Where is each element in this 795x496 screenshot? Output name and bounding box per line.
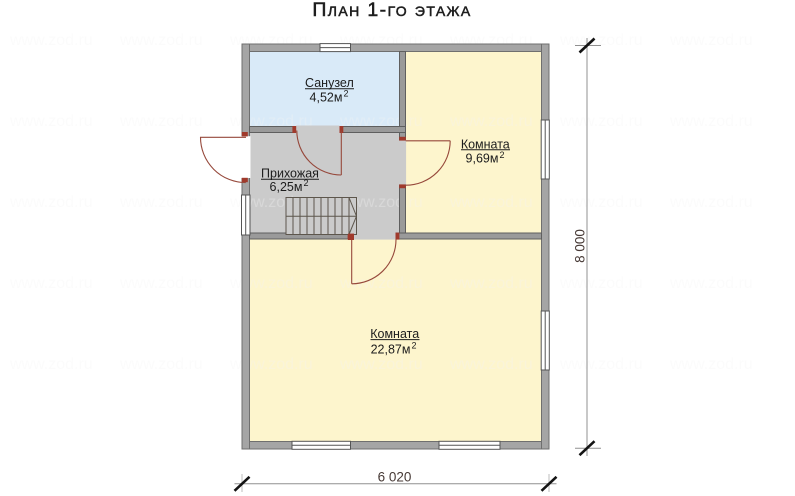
svg-text:2: 2 bbox=[344, 89, 349, 99]
svg-text:www.zod.ru: www.zod.ru bbox=[449, 113, 533, 130]
svg-text:www.zod.ru: www.zod.ru bbox=[339, 356, 423, 373]
svg-text:2: 2 bbox=[500, 150, 505, 160]
svg-text:www.zod.ru: www.zod.ru bbox=[669, 113, 753, 130]
svg-text:www.zod.ru: www.zod.ru bbox=[449, 275, 533, 292]
svg-text:www.zod.ru: www.zod.ru bbox=[559, 194, 643, 211]
svg-text:6,25м: 6,25м bbox=[270, 180, 303, 194]
svg-text:www.zod.ru: www.zod.ru bbox=[9, 275, 93, 292]
svg-text:6 020: 6 020 bbox=[378, 469, 412, 484]
svg-text:www.zod.ru: www.zod.ru bbox=[9, 113, 93, 130]
svg-text:www.zod.ru: www.zod.ru bbox=[119, 113, 203, 130]
svg-text:www.zod.ru: www.zod.ru bbox=[449, 356, 533, 373]
svg-text:www.zod.ru: www.zod.ru bbox=[9, 356, 93, 373]
svg-text:www.zod.ru: www.zod.ru bbox=[119, 32, 203, 49]
svg-text:www.zod.ru: www.zod.ru bbox=[9, 32, 93, 49]
svg-text:4,52м: 4,52м bbox=[310, 90, 343, 104]
svg-text:Прихожая: Прихожая bbox=[261, 167, 319, 181]
svg-text:www.zod.ru: www.zod.ru bbox=[669, 356, 753, 373]
svg-text:www.zod.ru: www.zod.ru bbox=[119, 356, 203, 373]
svg-text:www.zod.ru: www.zod.ru bbox=[119, 194, 203, 211]
svg-text:www.zod.ru: www.zod.ru bbox=[669, 32, 753, 49]
svg-text:Комната: Комната bbox=[370, 327, 419, 341]
svg-text:www.zod.ru: www.zod.ru bbox=[9, 194, 93, 211]
svg-text:8 000: 8 000 bbox=[572, 229, 587, 263]
svg-text:www.zod.ru: www.zod.ru bbox=[559, 275, 643, 292]
svg-text:www.zod.ru: www.zod.ru bbox=[669, 275, 753, 292]
svg-text:www.zod.ru: www.zod.ru bbox=[119, 275, 203, 292]
svg-text:9,69м: 9,69м bbox=[466, 152, 499, 166]
svg-text:www.zod.ru: www.zod.ru bbox=[559, 113, 643, 130]
svg-text:www.zod.ru: www.zod.ru bbox=[669, 194, 753, 211]
svg-text:План 1-го этажа: План 1-го этажа bbox=[312, 0, 471, 21]
svg-text:2: 2 bbox=[304, 178, 309, 188]
svg-text:2: 2 bbox=[412, 341, 417, 351]
svg-text:22,87м: 22,87м bbox=[371, 342, 411, 356]
svg-text:www.zod.ru: www.zod.ru bbox=[559, 32, 643, 49]
svg-text:www.zod.ru: www.zod.ru bbox=[449, 194, 533, 211]
svg-text:www.zod.ru: www.zod.ru bbox=[559, 356, 643, 373]
